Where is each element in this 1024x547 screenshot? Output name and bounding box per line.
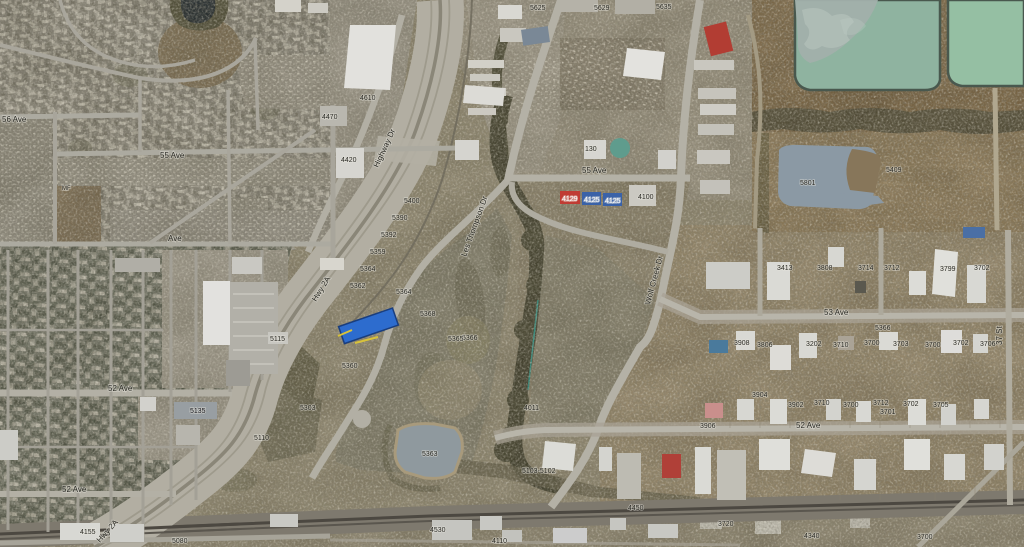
svg-text:52 Ave: 52 Ave [62,485,87,494]
svg-text:5368: 5368 [420,311,436,318]
svg-text:3701: 3701 [880,409,896,416]
svg-text:55 Ave: 55 Ave [160,151,185,160]
svg-text:3808: 3808 [817,265,833,272]
svg-text:4450: 4450 [628,505,644,512]
svg-text:5360: 5360 [342,363,358,370]
svg-text:5366: 5366 [875,325,891,332]
svg-text:3702: 3702 [974,265,990,272]
svg-text:4011: 4011 [524,405,539,412]
svg-text:55 Ave: 55 Ave [582,166,607,175]
svg-text:56 Ave: 56 Ave [2,115,27,124]
svg-text:4470: 4470 [322,114,338,121]
svg-text:3908: 3908 [734,340,750,347]
svg-text:3712: 3712 [884,265,900,272]
svg-text:3702: 3702 [953,340,969,347]
svg-text:3710: 3710 [833,342,849,349]
svg-text:5400: 5400 [404,198,420,205]
svg-text:5363: 5363 [422,451,438,458]
svg-text:5392: 5392 [381,232,397,239]
svg-text:4125: 4125 [605,198,621,205]
svg-text:5409: 5409 [886,167,902,174]
svg-text:5103-5102: 5103-5102 [522,468,556,475]
svg-text:4530: 4530 [430,527,446,534]
svg-text:4155: 4155 [80,529,96,536]
svg-text:3706: 3706 [980,341,996,348]
svg-text:3710: 3710 [814,400,830,407]
svg-text:4100: 4100 [638,194,654,201]
svg-text:53 Ave: 53 Ave [824,308,849,317]
svg-text:3702: 3702 [903,401,919,408]
svg-text:5366: 5366 [462,335,478,342]
svg-text:4340: 4340 [804,533,820,540]
svg-text:5080: 5080 [172,538,188,545]
svg-text:5365: 5365 [448,336,464,343]
svg-text:5635: 5635 [656,4,672,11]
svg-text:37 St: 37 St [995,326,1004,345]
svg-text:Ave: Ave [168,234,182,243]
svg-text:5390: 5390 [392,215,408,222]
svg-text:MF: MF [62,186,71,192]
svg-text:3904: 3904 [752,392,768,399]
svg-text:3806: 3806 [757,342,773,349]
svg-text:5629: 5629 [594,5,610,12]
svg-text:3906: 3906 [700,423,716,430]
svg-text:52 Ave: 52 Ave [796,421,821,430]
svg-text:3705: 3705 [933,402,949,409]
svg-text:4125: 4125 [584,197,600,204]
svg-text:5135: 5135 [190,408,206,415]
svg-text:4110: 4110 [492,538,507,545]
svg-text:3700: 3700 [843,402,859,409]
svg-text:5303: 5303 [300,405,316,412]
svg-text:5359: 5359 [370,249,386,256]
svg-text:5801: 5801 [800,180,816,187]
svg-text:5364: 5364 [360,266,376,273]
svg-text:3703: 3703 [893,341,909,348]
svg-text:3202: 3202 [806,341,822,348]
svg-text:5364: 5364 [396,289,412,296]
svg-text:5115: 5115 [270,336,285,343]
svg-text:3714: 3714 [858,265,874,272]
svg-text:3700: 3700 [917,534,933,541]
svg-text:3799: 3799 [940,266,956,273]
svg-text:4129: 4129 [562,196,578,203]
svg-text:3700: 3700 [925,342,941,349]
svg-text:3902: 3902 [788,402,804,409]
svg-text:4610: 4610 [360,95,376,102]
svg-text:130: 130 [585,146,597,153]
svg-text:5625: 5625 [530,5,546,12]
svg-text:52 Ave: 52 Ave [108,384,133,393]
svg-text:3700: 3700 [864,340,880,347]
svg-text:3413: 3413 [777,265,793,272]
svg-text:3712: 3712 [873,400,889,407]
svg-text:5110: 5110 [254,435,269,442]
svg-text:5362: 5362 [350,283,366,290]
svg-text:3720: 3720 [718,521,734,528]
svg-text:4420: 4420 [341,157,357,164]
